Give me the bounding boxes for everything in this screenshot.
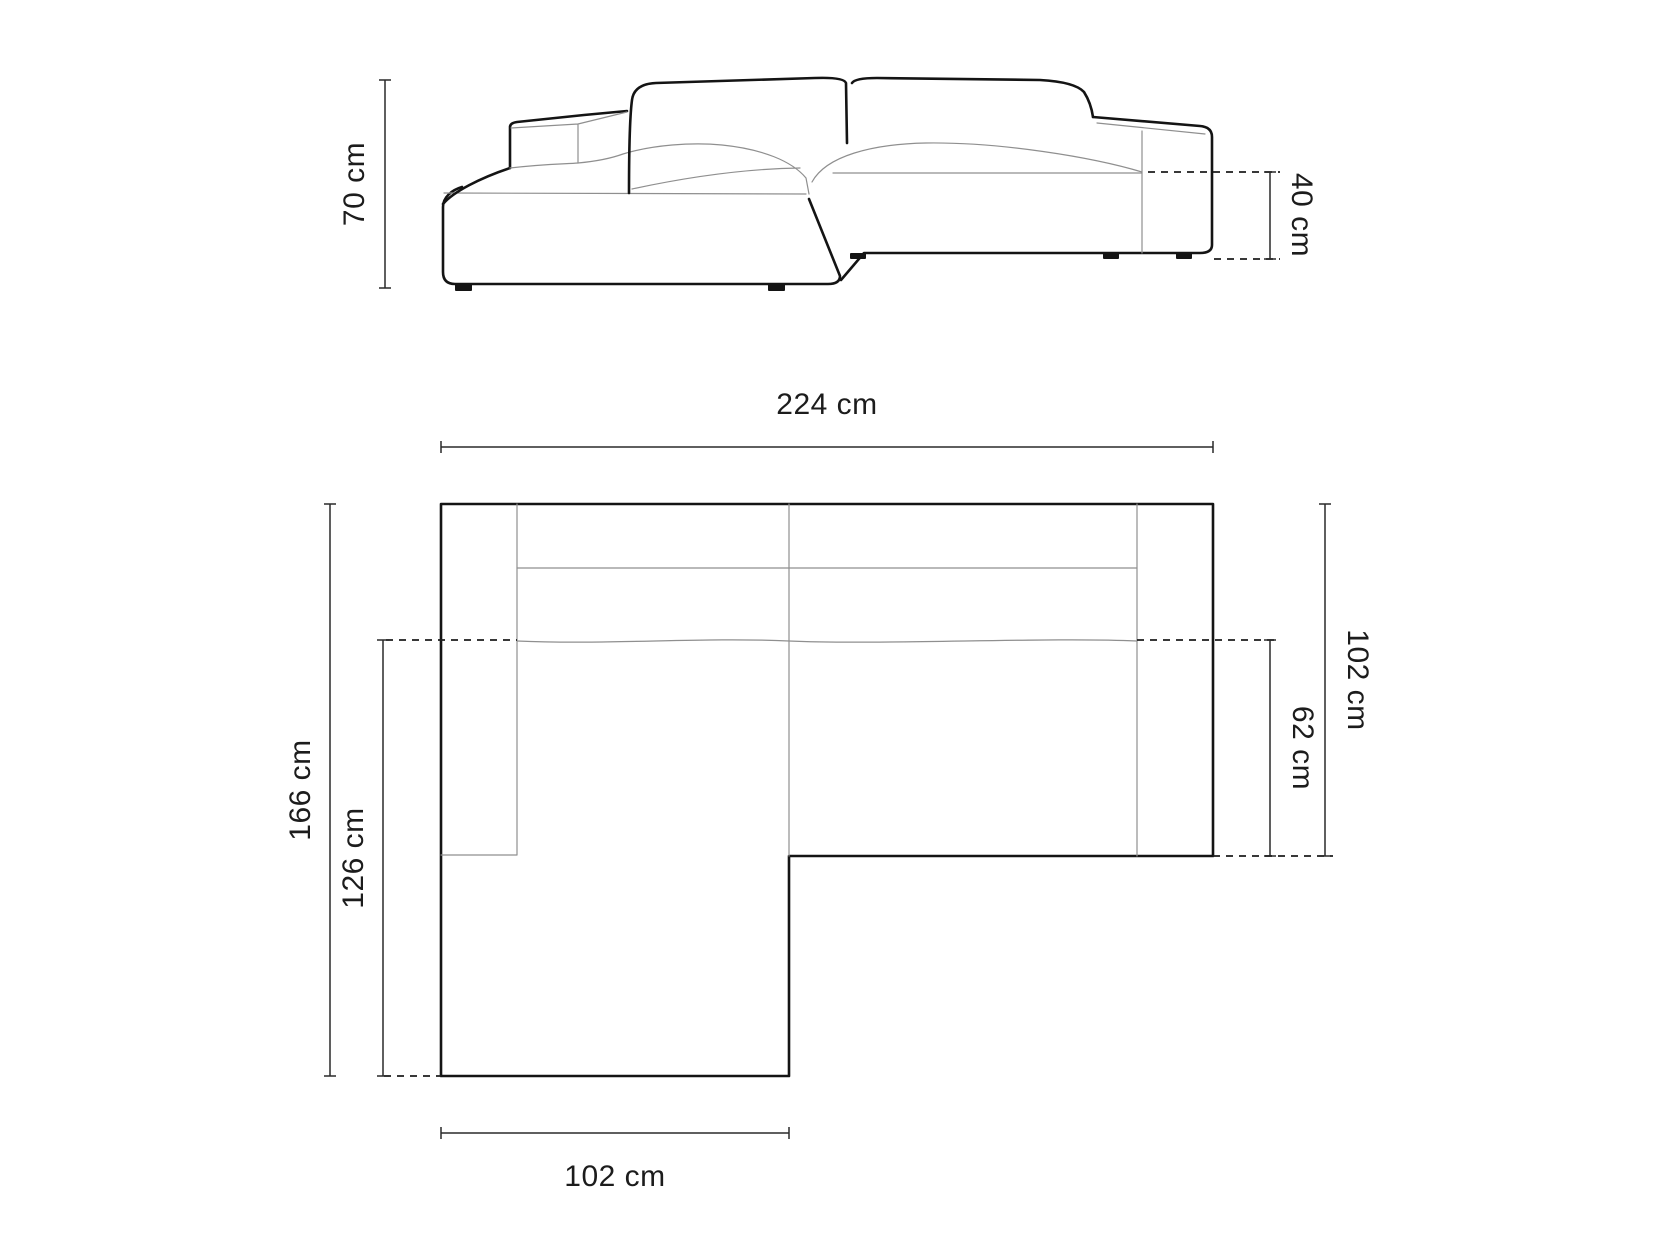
right-armrest-inner-edges (1097, 123, 1205, 253)
dim-label-chaise-width: 102 cm (564, 1160, 665, 1193)
foot (768, 284, 785, 291)
dim-line-224 (441, 441, 1213, 453)
dim-label-total-depth: 166 cm (284, 739, 317, 840)
dim-line-40 (1264, 172, 1276, 259)
elevation-view: 70 cm 40 cm (338, 78, 1318, 291)
dim-seat-height: 40 cm (1148, 172, 1318, 259)
left-armrest-outline (510, 111, 627, 168)
plan-left-armrest-inner (441, 504, 517, 855)
dim-line-70 (379, 80, 391, 288)
backrest-right-outline (852, 78, 1093, 117)
chaise-base-outline (443, 187, 840, 284)
right-body-and-armrest-outline (841, 117, 1212, 280)
dim-total-depth: 166 cm (284, 504, 336, 1076)
seat-cushion-hump-right (812, 143, 1142, 182)
dim-line-102-right (1319, 504, 1331, 856)
dim-total-height: 70 cm (338, 80, 391, 288)
dim-line-62 (1264, 640, 1276, 856)
dim-line-102-bottom (441, 1127, 789, 1139)
dim-line-126 (377, 640, 389, 1076)
foot (850, 253, 866, 259)
backrest-left-outline (629, 78, 847, 193)
dim-label-total-height: 70 cm (338, 142, 371, 226)
dim-label-total-width: 224 cm (776, 388, 877, 421)
dim-label-chaise-depth: 126 cm (337, 807, 370, 908)
plan-seat-front-line (517, 640, 1137, 642)
foot (455, 284, 472, 291)
chaise-cushion-edge (443, 168, 510, 204)
foot (1176, 253, 1192, 259)
plan-view: 224 cm 166 cm 126 cm 62 cm 102 cm (284, 388, 1374, 1193)
chaise-face-top-edge (444, 193, 806, 194)
dim-total-width: 224 cm (441, 388, 1213, 453)
foot (1103, 253, 1119, 259)
dim-right-depth: 102 cm (1213, 504, 1374, 856)
dim-label-right-depth: 102 cm (1341, 629, 1374, 730)
dim-label-seat-depth: 62 cm (1286, 706, 1319, 790)
dim-chaise-width: 102 cm (441, 1127, 789, 1193)
backrest-left-bottom-arc (632, 168, 800, 189)
dim-seat-depth: 62 cm (1137, 640, 1319, 856)
sofa-dimension-diagram: 70 cm 40 cm 224 cm 166 cm (0, 0, 1653, 1240)
dim-line-166 (324, 504, 336, 1076)
diagram-svg: 70 cm 40 cm 224 cm 166 cm (0, 0, 1653, 1240)
plan-outline (441, 504, 1213, 1076)
dim-label-seat-height: 40 cm (1285, 173, 1318, 257)
dim-chaise-depth: 126 cm (337, 640, 517, 1076)
